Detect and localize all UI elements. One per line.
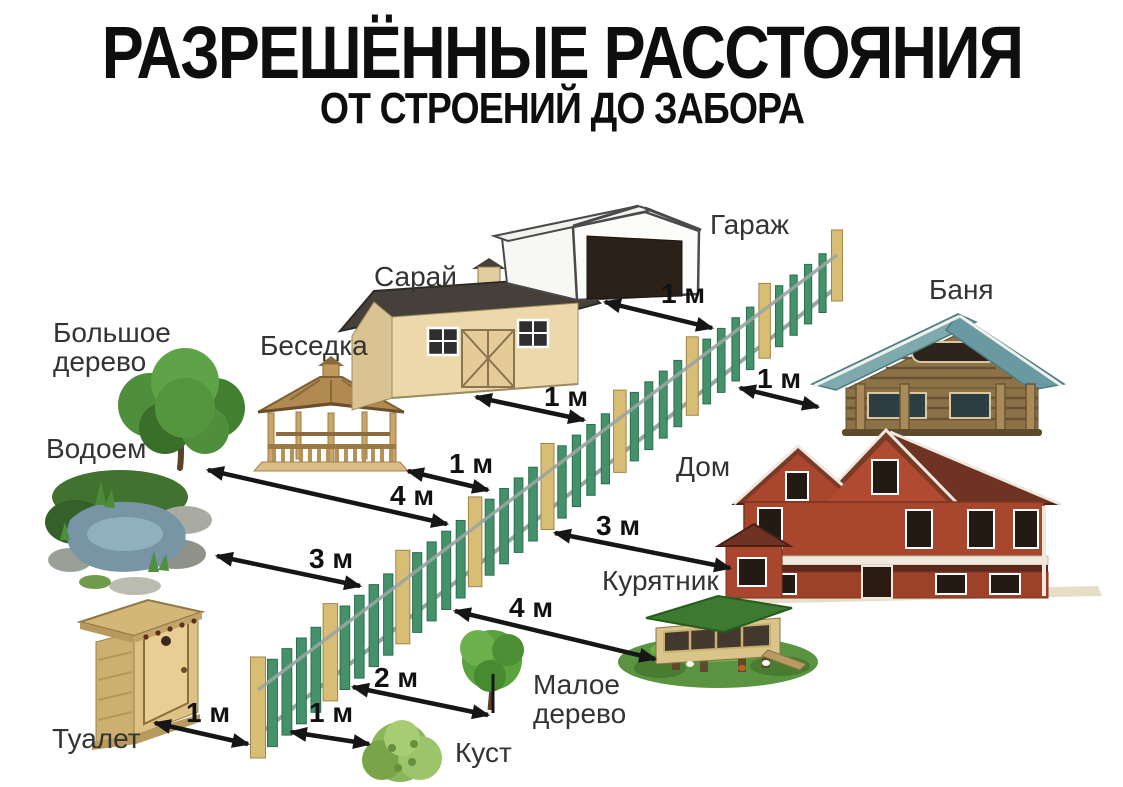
label-house: Дом <box>676 452 730 481</box>
house-illustration <box>718 430 1102 604</box>
bush-illustration <box>362 720 442 782</box>
label-small-tree: Малое дерево <box>533 670 683 729</box>
distance-value-gazebo: 1 м <box>449 448 493 480</box>
label-chicken-coop: Курятник <box>602 566 719 595</box>
distance-value-shed: 1 м <box>544 381 588 413</box>
infographic-canvas: РАЗРЕШЁННЫЕ РАССТОЯНИЯ ОТ СТРОЕНИЙ ДО ЗА… <box>0 0 1123 787</box>
distance-value-pond: 3 м <box>309 543 353 575</box>
distance-value-big-tree: 4 м <box>390 480 434 512</box>
page-subtitle: ОТ СТРОЕНИЙ ДО ЗАБОРА <box>319 84 803 134</box>
label-gazebo: Беседка <box>260 331 368 360</box>
distance-value-garage: 1 м <box>661 278 705 310</box>
label-toilet: Туалет <box>52 724 141 753</box>
pond-illustration <box>45 470 212 595</box>
distance-value-bathhouse: 1 м <box>757 363 801 395</box>
distance-value-house: 3 м <box>596 510 640 542</box>
distance-arrow-house <box>555 533 730 568</box>
label-bathhouse: Баня <box>929 275 994 304</box>
label-bush: Куст <box>455 738 512 767</box>
label-garage: Гараж <box>710 210 789 239</box>
distance-value-toilet: 1 м <box>186 697 230 729</box>
distance-value-chicken-coop: 4 м <box>509 592 553 624</box>
distance-value-small-tree: 2 м <box>374 662 418 694</box>
page-title: РАЗРЕШЁННЫЕ РАССТОЯНИЯ <box>101 10 1021 95</box>
label-shed: Сарай <box>374 262 457 291</box>
label-pond: Водоем <box>46 434 146 463</box>
distance-value-bush: 1 м <box>309 697 353 729</box>
bathhouse-illustration <box>812 314 1064 436</box>
distance-arrow-bush <box>291 732 369 744</box>
label-big-tree: Большое дерево <box>53 318 203 377</box>
